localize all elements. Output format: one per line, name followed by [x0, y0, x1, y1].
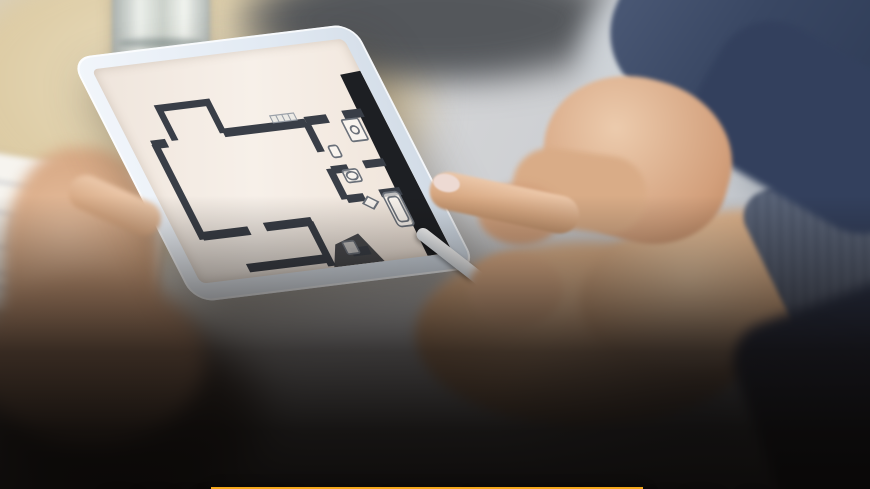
dark-gradient-overlay	[0, 0, 870, 489]
banner-image: BEST FLOOR PLANS FOR A 10 MARLA HOUSE	[0, 0, 870, 489]
